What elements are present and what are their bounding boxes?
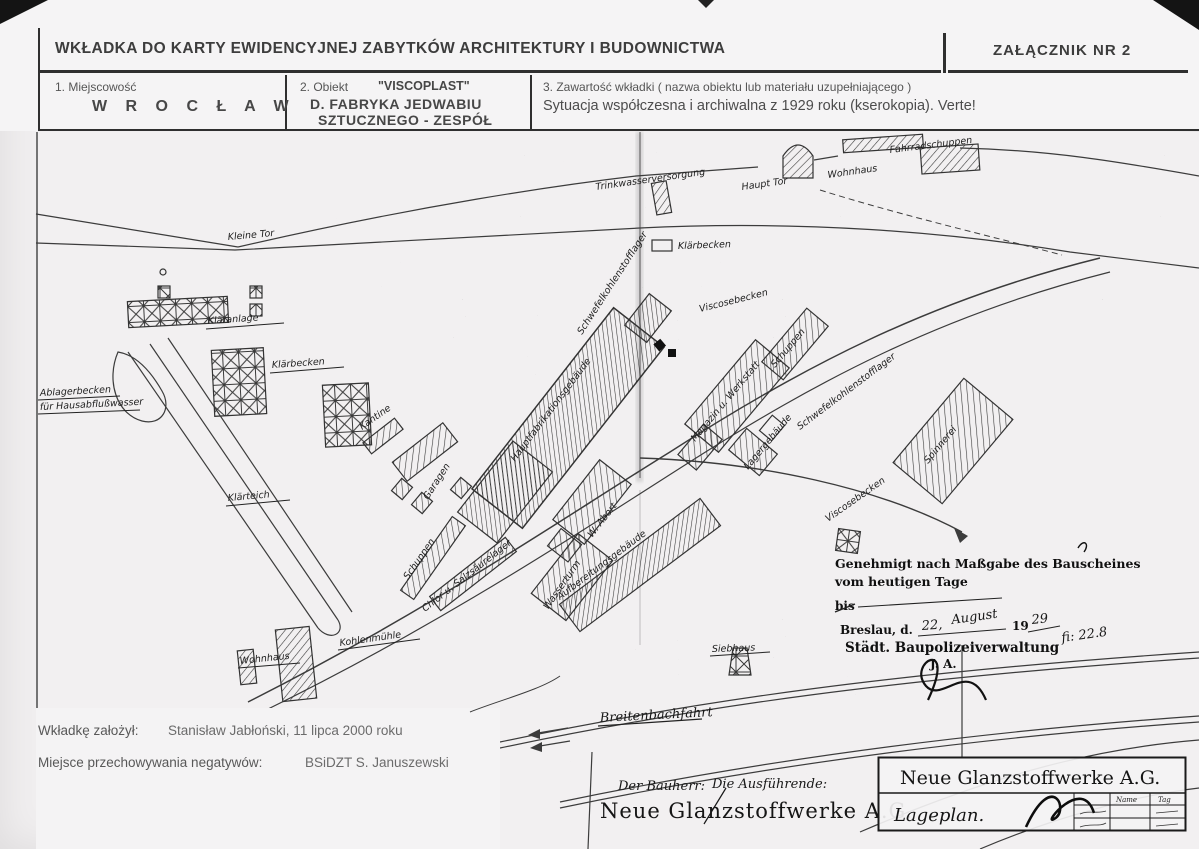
stamp-city: Breslau, d.: [840, 623, 913, 637]
field-2-value-line2: SZTUCZNEGO - ZESPÓŁ: [318, 112, 492, 128]
scan-artifact-top-left: [0, 0, 48, 24]
header-rule: [38, 70, 941, 73]
field-3-value: Sytuacja współczesna i archiwalna z 1929…: [543, 98, 976, 114]
field-1-value: W R O C Ł A W: [92, 98, 296, 116]
title-block-col-name: Name: [1115, 796, 1137, 804]
main-gate-arch: [783, 145, 813, 178]
document-title: WKŁADKA DO KARTY EWIDENCYJNEJ ZABYTKÓW A…: [55, 40, 725, 58]
negatives-value: BSiDZT S. Januszewski: [305, 755, 449, 770]
negatives-label: Miejsce przechowywania negatywów:: [38, 755, 262, 770]
stamp-year-handwritten: 29: [1030, 611, 1049, 628]
field-2-label: 2. Obiekt: [300, 80, 348, 94]
field-2-quote: "VISCOPLAST": [378, 79, 470, 93]
ausfuehrende-label: Die Ausführende:: [711, 777, 827, 792]
drawing-title-block: Neue Glanzstoffwerke A.G. Lageplan. Name…: [878, 758, 1186, 832]
title-block-company: Neue Glanzstoffwerke A.G.: [900, 767, 1160, 789]
stamp-line-2: vom heutigen Tage: [834, 574, 968, 589]
band-bottom-rule: [38, 129, 1199, 131]
title-block-col-tag: Tag: [1158, 796, 1171, 804]
scan-artifact-top-right: [1153, 0, 1199, 30]
map-label-klaerbecken-small: Klärbecken: [678, 239, 731, 252]
scan-artifact-top-center: [698, 0, 714, 8]
founder-value: Stanisław Jabłoński, 11 lipca 2000 roku: [168, 723, 403, 738]
scanned-record-card: Trinkwasserversorgung Haupt Tor Wohnhaus…: [0, 0, 1199, 849]
title-block-title: Lageplan.: [893, 805, 984, 826]
left-border: [38, 28, 40, 131]
bauherr-company: Neue Glanzstoffwerke A.G.: [600, 799, 913, 823]
stamp-line-1: Genehmigt nach Maßgabe des Bauscheines: [835, 556, 1141, 571]
field-3-label: 3. Zawartość wkładki ( nazwa obiektu lub…: [543, 80, 911, 94]
form-header-band: WKŁADKA DO KARTY EWIDENCYJNEJ ZABYTKÓW A…: [0, 0, 1199, 131]
founder-label: Wkładkę założył:: [38, 723, 139, 738]
attachment-separator: [943, 33, 946, 73]
attachment-rule: [948, 70, 1188, 73]
stamp-year-prefix: 19: [1012, 619, 1029, 633]
stamp-day-handwritten: 22,: [920, 618, 943, 634]
stamp-authority: Städt. Baupolizeiverwaltung: [845, 640, 1060, 656]
field-2-value-line1: D. FABRYKA JEDWABIU: [310, 96, 482, 112]
field-separator-2: [530, 75, 532, 131]
bauherr-label: Der Bauherr:: [617, 779, 705, 794]
attachment-number: ZAŁĄCZNIK NR 2: [993, 42, 1131, 59]
field-1-label: 1. Miejscowość: [55, 80, 136, 94]
